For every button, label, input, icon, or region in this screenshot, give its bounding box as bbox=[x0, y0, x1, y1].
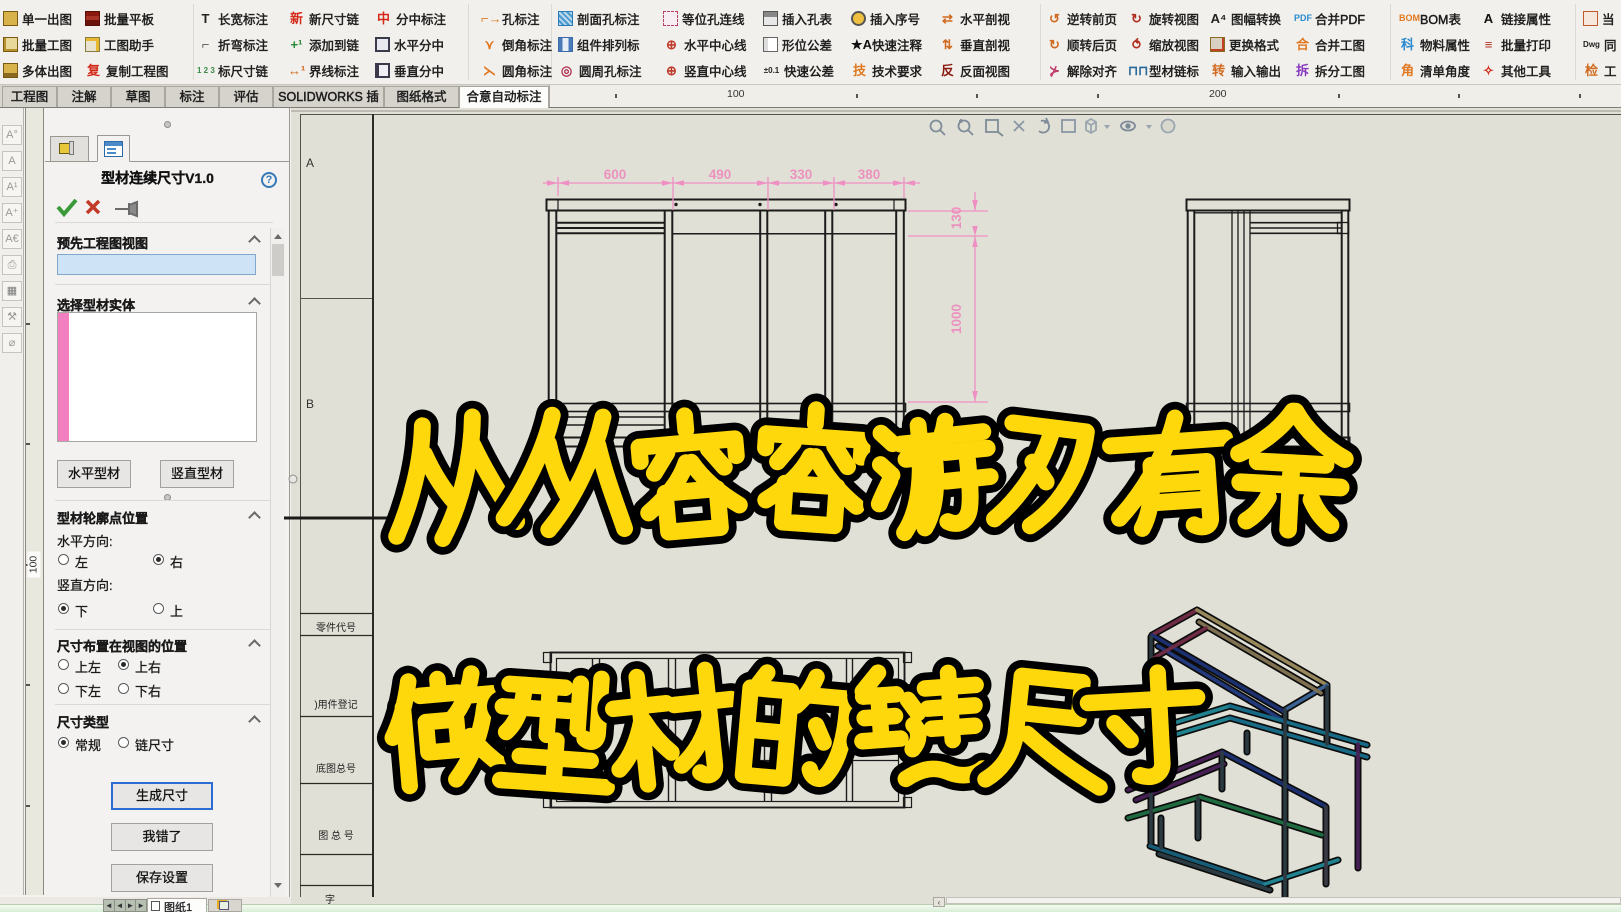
svg-text:380: 380 bbox=[858, 167, 881, 182]
svg-text:图 总 号: 图 总 号 bbox=[318, 829, 354, 842]
svg-text:130: 130 bbox=[949, 207, 964, 230]
svg-text:600: 600 bbox=[604, 167, 627, 182]
svg-text:B: B bbox=[306, 397, 314, 411]
svg-text:底图总号: 底图总号 bbox=[316, 762, 356, 775]
svg-text:490: 490 bbox=[709, 167, 732, 182]
svg-text:330: 330 bbox=[790, 167, 813, 182]
svg-text:零件代号: 零件代号 bbox=[316, 622, 356, 634]
svg-text:1000: 1000 bbox=[949, 304, 964, 334]
svg-text:)用件登记: )用件登记 bbox=[314, 698, 357, 711]
svg-text:A: A bbox=[306, 156, 314, 170]
